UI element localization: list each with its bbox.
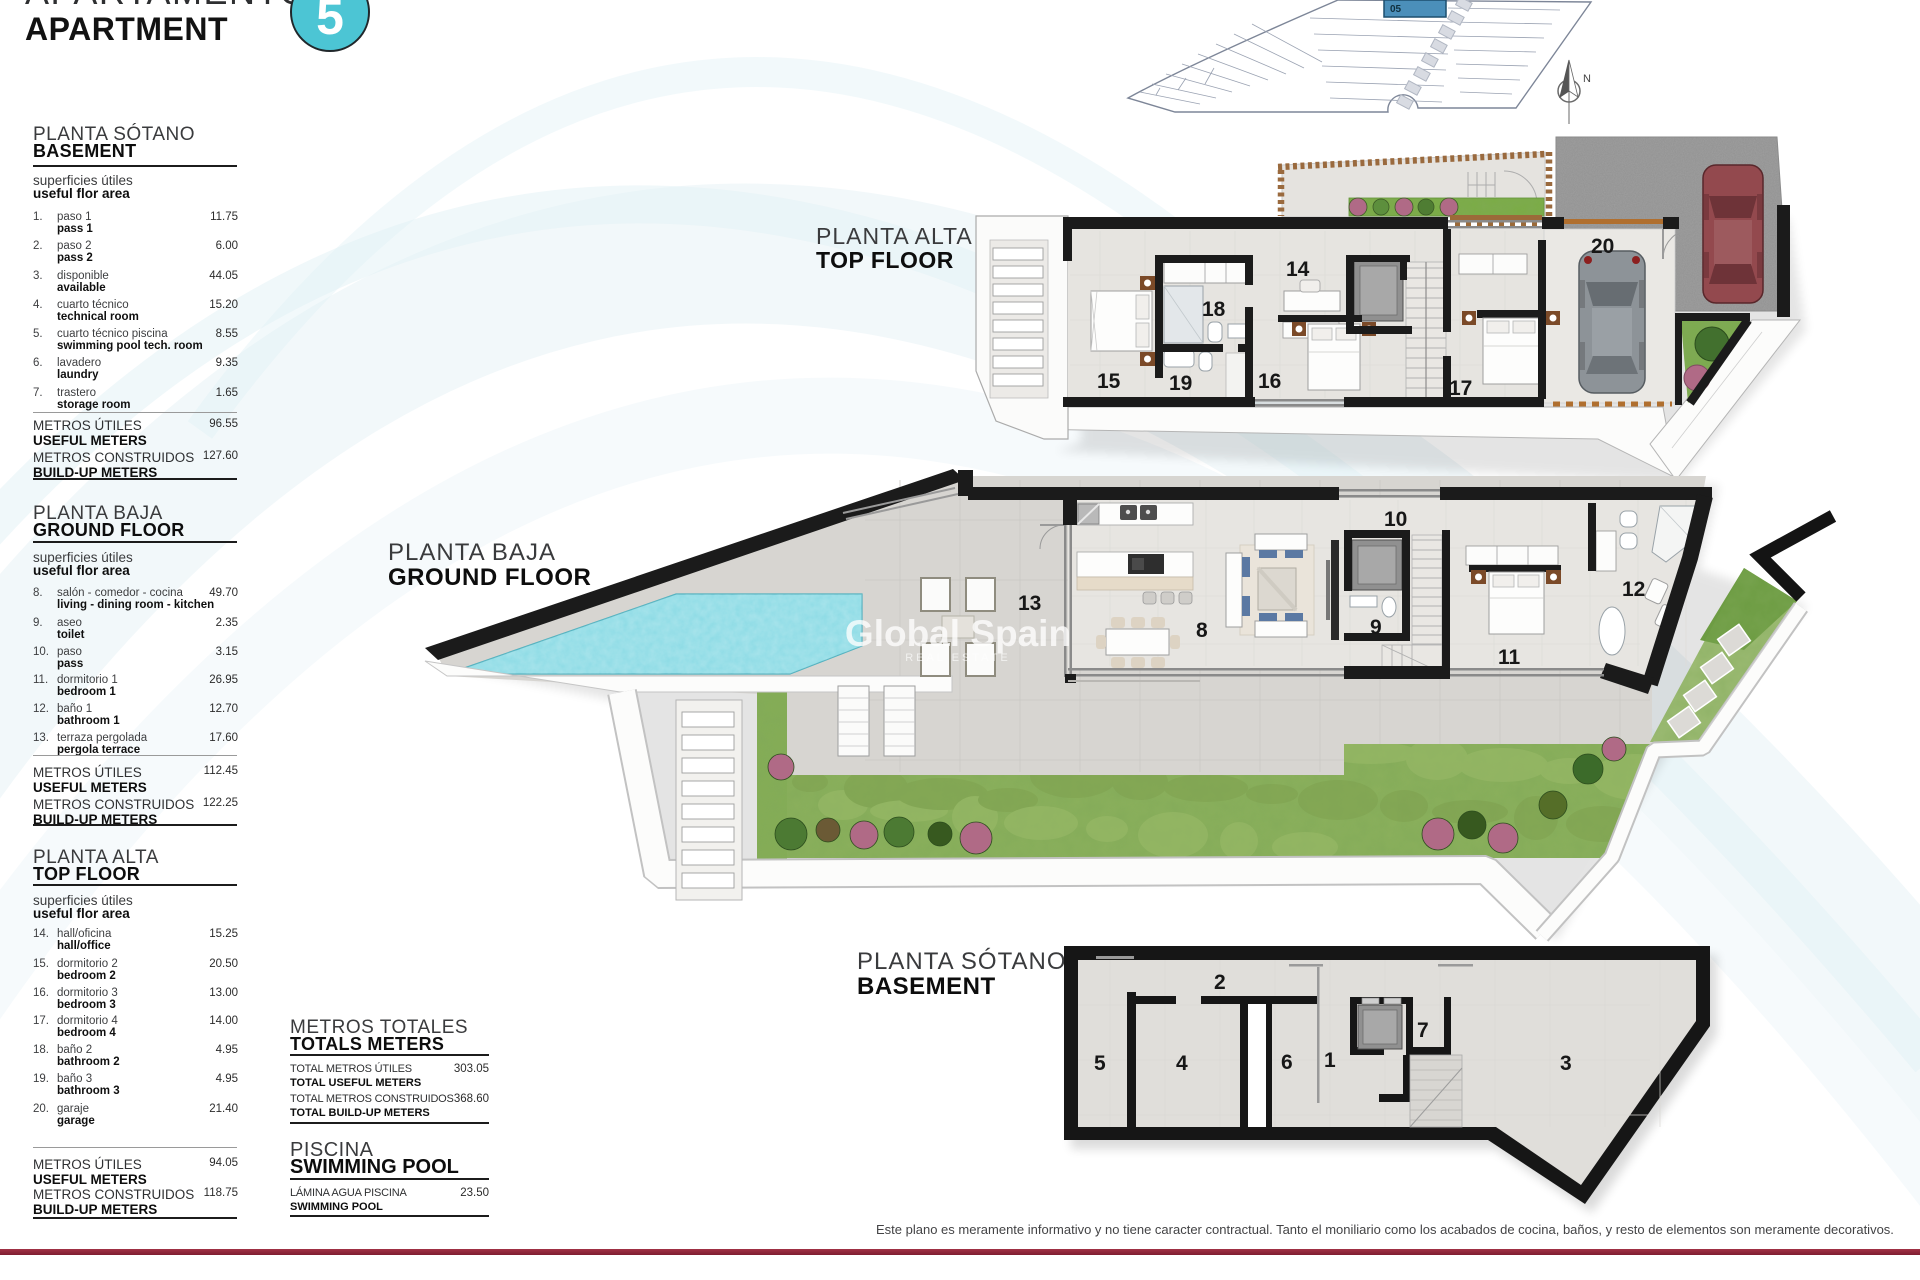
svg-text:2: 2 xyxy=(1214,971,1226,994)
svg-text:10: 10 xyxy=(1384,508,1407,531)
svg-text:8: 8 xyxy=(1196,619,1208,642)
svg-text:05: 05 xyxy=(1390,4,1402,15)
svg-text:20: 20 xyxy=(1591,235,1614,258)
svg-text:5: 5 xyxy=(1094,1052,1106,1075)
svg-text:6: 6 xyxy=(1281,1051,1293,1074)
svg-text:1: 1 xyxy=(1324,1049,1336,1072)
svg-text:12: 12 xyxy=(1622,578,1645,601)
svg-text:Global Spain: Global Spain xyxy=(845,613,1071,654)
svg-text:7: 7 xyxy=(1417,1019,1429,1042)
svg-text:N: N xyxy=(1583,73,1591,85)
svg-text:18: 18 xyxy=(1202,298,1226,321)
svg-text:16: 16 xyxy=(1258,370,1281,393)
svg-text:15: 15 xyxy=(1097,370,1121,393)
svg-text:11: 11 xyxy=(1498,646,1521,669)
svg-text:4: 4 xyxy=(1176,1052,1188,1075)
svg-text:19: 19 xyxy=(1169,372,1192,395)
svg-text:9: 9 xyxy=(1370,616,1382,639)
svg-text:17: 17 xyxy=(1449,377,1472,400)
svg-text:3: 3 xyxy=(1560,1052,1572,1075)
svg-text:REAL ESTATE: REAL ESTATE xyxy=(905,652,1011,664)
svg-text:13: 13 xyxy=(1018,592,1041,615)
svg-text:14: 14 xyxy=(1286,258,1310,281)
